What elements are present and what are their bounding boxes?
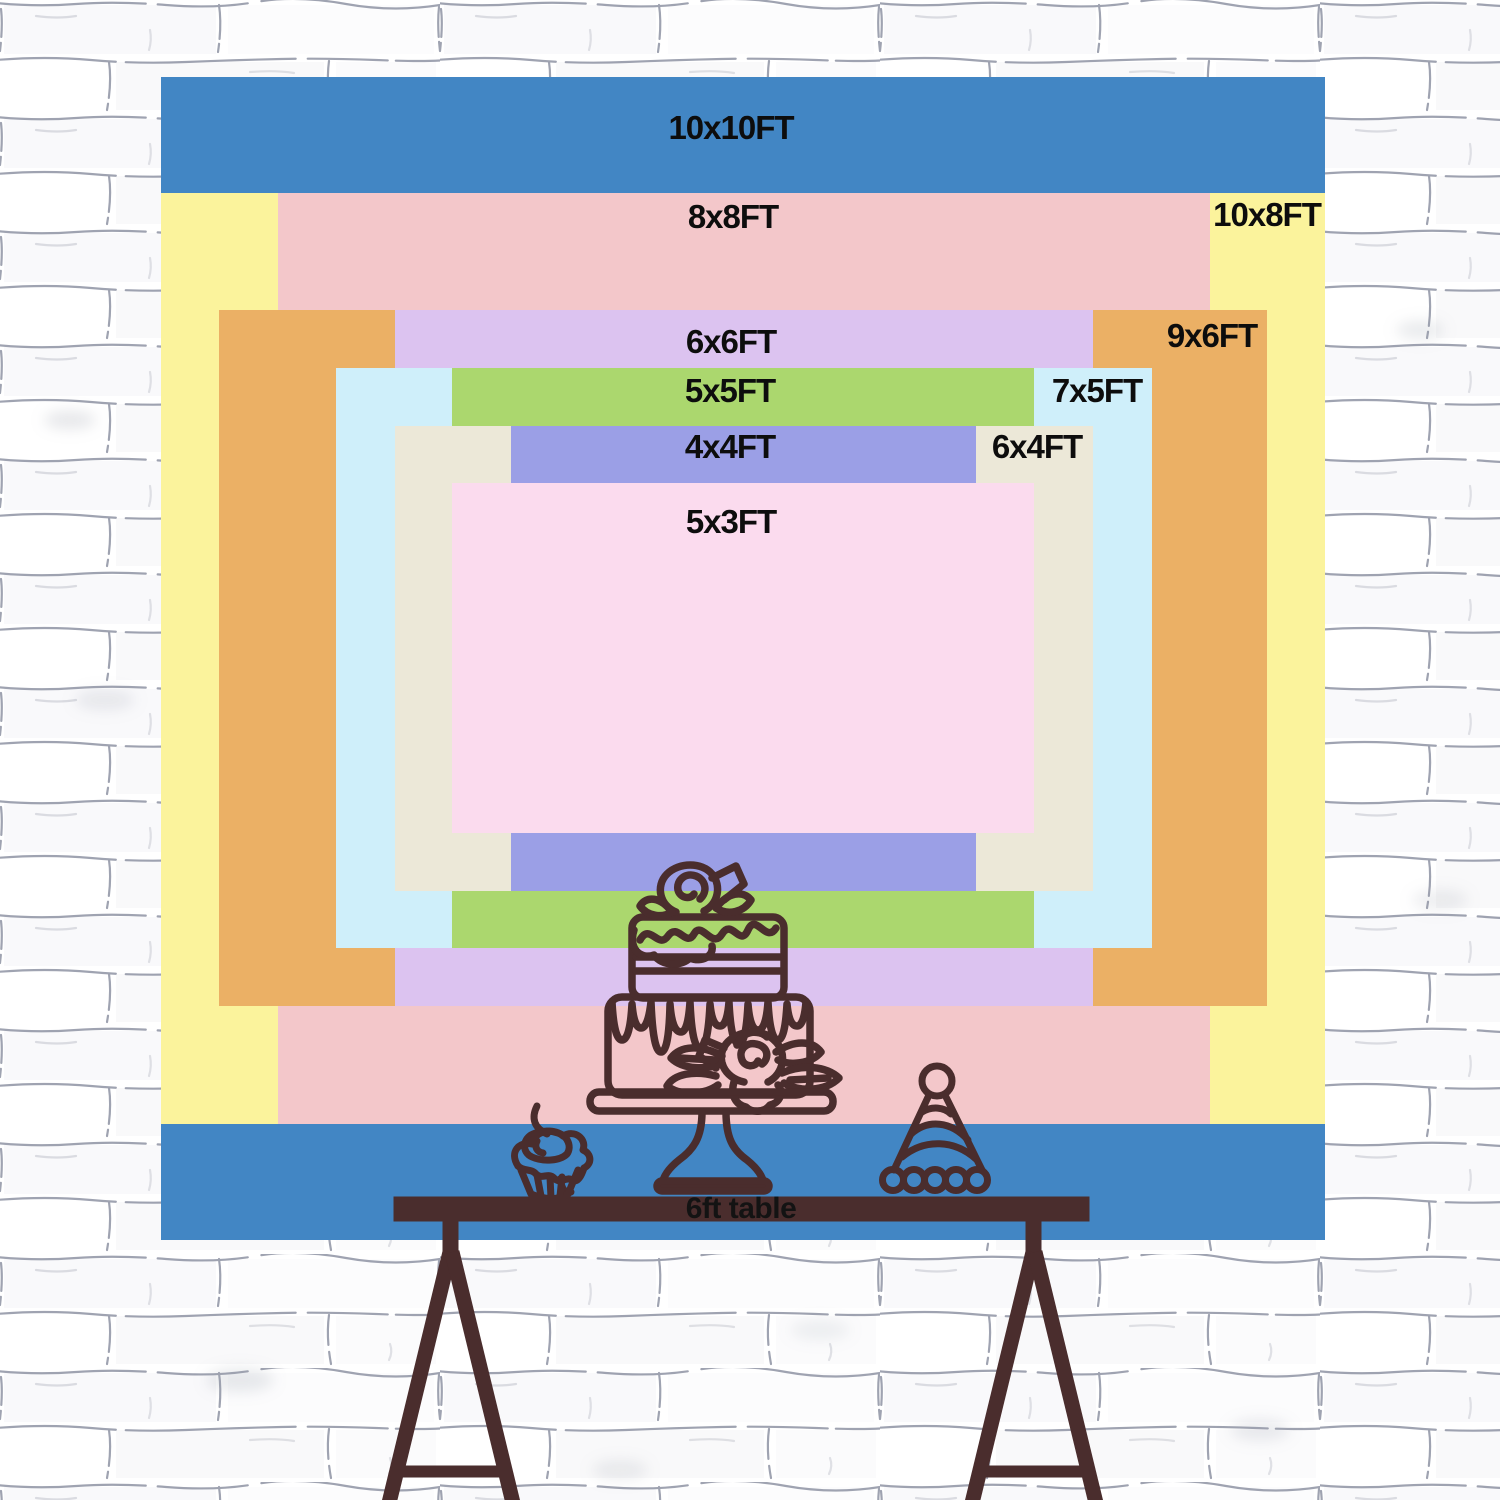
size-label-4x4ft: 4x4FT bbox=[685, 428, 775, 466]
size-label-6x4ft: 6x4FT bbox=[992, 428, 1082, 466]
size-label-6x6ft: 6x6FT bbox=[686, 323, 776, 361]
size-label-5x3ft: 5x3FT bbox=[686, 503, 776, 541]
size-labels: 10x10FT 10x8FT 8x8FT 9x6FT 6x6FT 7x5FT 5… bbox=[0, 0, 1500, 1500]
size-label-5x5ft: 5x5FT bbox=[685, 372, 775, 410]
size-label-8x8ft: 8x8FT bbox=[688, 198, 778, 236]
size-label-10x8ft: 10x8FT bbox=[1213, 196, 1321, 234]
table-size-label: 6ft table bbox=[686, 1192, 797, 1226]
size-label-9x6ft: 9x6FT bbox=[1167, 317, 1257, 355]
size-label-10x10ft: 10x10FT bbox=[668, 109, 793, 147]
size-label-7x5ft: 7x5FT bbox=[1052, 372, 1142, 410]
backdrop-size-chart: 10x10FT 10x8FT 8x8FT 9x6FT 6x6FT 7x5FT 5… bbox=[0, 0, 1500, 1500]
